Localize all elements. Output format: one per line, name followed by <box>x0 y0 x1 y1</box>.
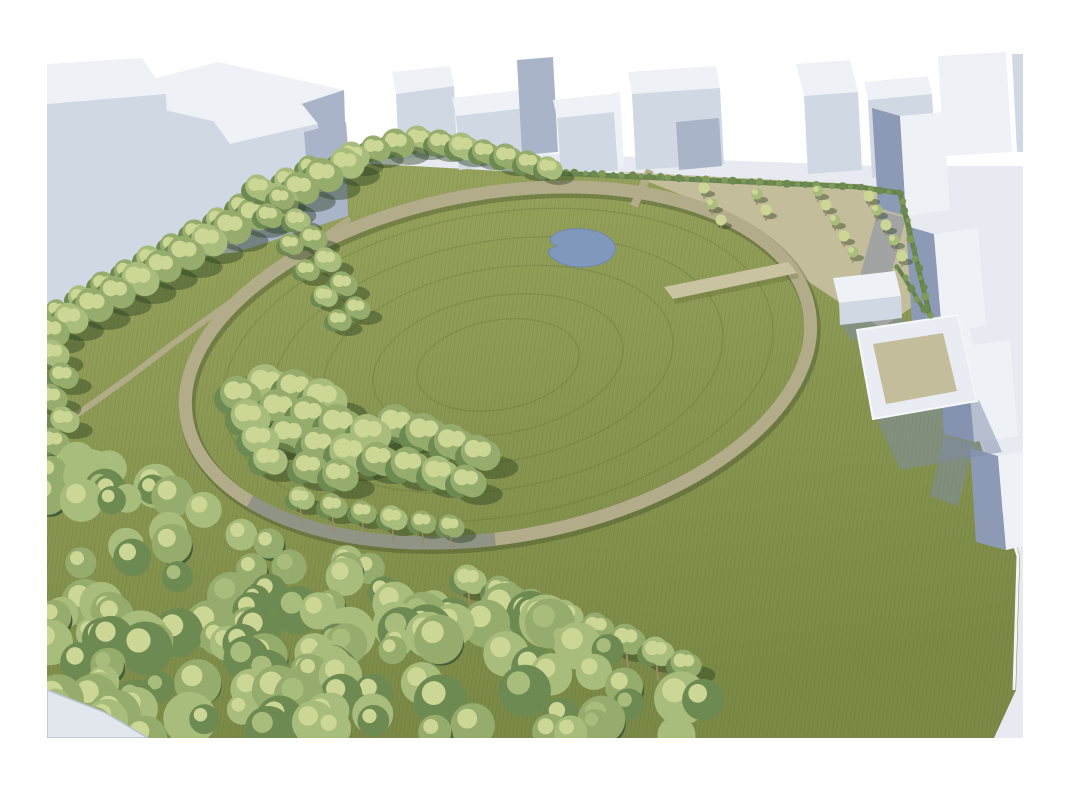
canopy-highlight <box>70 551 84 565</box>
hedge-shrub <box>629 171 637 179</box>
tree-highlight <box>267 208 278 219</box>
sapling-crown <box>752 189 758 195</box>
canopy-highlight <box>281 592 303 614</box>
canopy-highlight <box>214 578 235 599</box>
canopy-highlight <box>305 597 322 614</box>
hedge-shrub <box>711 177 716 182</box>
building-block-f <box>553 92 624 176</box>
building-face <box>804 92 862 174</box>
canopy-highlight <box>241 557 255 571</box>
tree-highlight <box>90 294 105 309</box>
hedge-shrub <box>665 175 672 182</box>
tree-highlight <box>48 389 60 401</box>
hedge-shrub <box>598 170 606 178</box>
hedge-shrub <box>591 170 598 177</box>
hedge-shrub <box>721 177 728 184</box>
tree-highlight <box>286 423 302 439</box>
tree-highlight <box>67 308 80 321</box>
sapling-crown <box>889 235 895 241</box>
tree-highlight <box>464 471 478 485</box>
sapling-crown <box>872 205 878 211</box>
canopy-highlight <box>383 639 396 652</box>
tree-highlight <box>50 345 62 357</box>
hedge-shrub <box>909 287 914 292</box>
hedge-shrub <box>611 172 616 177</box>
hedge-shrub <box>911 247 916 252</box>
tree-highlight <box>228 216 243 231</box>
hedge-shrub <box>848 184 853 189</box>
tree-highlight <box>320 164 335 179</box>
hedge-shrub <box>783 180 791 188</box>
tree-highlight <box>654 642 667 655</box>
canopy-highlight <box>119 543 136 560</box>
tree-highlight <box>279 191 289 201</box>
canopy-highlight <box>102 490 115 503</box>
hedge-shrub <box>657 175 662 180</box>
building-tall-slab <box>517 57 558 155</box>
canopy-highlight <box>167 565 181 579</box>
sapling-crown <box>897 251 903 257</box>
hedge-shrub <box>729 177 737 185</box>
canopy-highlight <box>158 481 177 500</box>
canopy-highlight <box>95 622 115 642</box>
canopy-highlight <box>457 709 477 729</box>
tree-highlight <box>159 256 173 270</box>
canopy-highlight <box>663 721 680 738</box>
park-rendering-svg <box>0 0 1068 799</box>
hedge-shrub <box>900 198 907 205</box>
tree-highlight <box>289 237 298 246</box>
building-row-slab-4 <box>970 448 1023 550</box>
canopy-highlight <box>596 638 610 652</box>
tree-highlight <box>311 230 322 241</box>
tree-highlight <box>246 406 261 421</box>
tree-highlight <box>460 138 472 150</box>
tree-highlight <box>306 457 320 471</box>
tree-highlight <box>527 155 538 166</box>
canopy-highlight <box>298 706 318 726</box>
hedge-shrub <box>795 182 800 187</box>
canopy-highlight <box>191 496 207 512</box>
canopy-highlight <box>538 718 554 734</box>
canopy-highlight <box>158 529 176 547</box>
scene-content <box>27 52 1023 760</box>
sapling-crown <box>830 215 836 221</box>
hedge-shrub <box>894 264 899 269</box>
hedge-shrub <box>921 293 929 301</box>
hedge-shrub <box>638 173 643 178</box>
canopy-highlight <box>194 708 208 722</box>
tree-highlight <box>366 421 382 437</box>
tree-highlight <box>361 505 371 515</box>
tree-highlight <box>449 519 459 529</box>
sapling-crown <box>848 247 854 253</box>
tree-highlight <box>624 629 637 642</box>
building-row-slab-1 <box>872 108 950 216</box>
tree-highlight <box>436 462 451 477</box>
building-bg-slab-1 <box>938 52 1012 156</box>
tree-highlight <box>682 655 694 667</box>
building-face <box>517 57 558 155</box>
hedge-shrub <box>921 284 928 291</box>
building-face <box>938 52 1012 156</box>
canopy-highlight <box>230 642 251 663</box>
canopy-highlight <box>300 659 315 674</box>
tree-highlight <box>421 515 431 525</box>
hedge-shrub <box>914 296 921 303</box>
hedge-shrub <box>886 190 891 195</box>
tree-highlight <box>61 411 72 422</box>
hedge-shrub <box>821 183 826 188</box>
tree-highlight <box>256 179 267 190</box>
hedge-shrub <box>829 183 836 190</box>
sapling-crown <box>821 200 827 206</box>
canopy-highlight <box>507 671 530 694</box>
hedge-shrub <box>906 227 913 234</box>
hedge-shrub <box>618 172 625 179</box>
hedge-shrub <box>900 207 908 215</box>
canopy-highlight <box>277 554 293 570</box>
building-face <box>676 118 722 170</box>
tree-highlight <box>406 454 421 469</box>
rendering-canvas <box>0 0 1068 799</box>
sapling-crown <box>864 191 870 197</box>
hedge-shrub <box>776 180 783 187</box>
canopy-highlight <box>230 523 244 537</box>
tree-highlight <box>466 570 479 583</box>
canopy-highlight <box>585 713 598 726</box>
hedge-shrub <box>756 178 764 186</box>
canopy-highlight <box>611 672 628 689</box>
canopy-highlight <box>181 665 202 686</box>
hedge-shrub <box>927 312 934 319</box>
hedge-shrub <box>748 178 755 185</box>
hedge-shrub <box>702 175 710 183</box>
sapling-crown <box>761 205 767 211</box>
tree-highlight <box>205 230 219 244</box>
canopy-highlight <box>422 681 446 705</box>
tree-highlight <box>594 618 607 631</box>
hedge-shrub <box>769 180 774 185</box>
canopy-highlight <box>258 532 272 546</box>
tree-highlight <box>182 242 197 257</box>
tree-highlight <box>48 321 61 334</box>
hedge-shrub <box>912 256 919 263</box>
hedge-shrub <box>684 176 689 181</box>
canopy-highlight <box>362 709 376 723</box>
canopy-highlight <box>95 652 110 667</box>
tree-highlight <box>299 491 309 501</box>
canopy-highlight <box>331 562 348 579</box>
hedge-shrub <box>918 275 923 280</box>
tree-highlight <box>236 383 252 399</box>
hedge-shrub <box>839 182 847 190</box>
tree-highlight <box>355 301 365 311</box>
canopy-highlight <box>688 684 707 703</box>
canopy-highlight <box>561 628 582 649</box>
hedge-shrub <box>906 235 914 243</box>
tree-highlight <box>325 252 336 263</box>
hedge-shrub <box>896 189 901 194</box>
building-face <box>900 112 950 216</box>
tree-highlight <box>297 178 311 192</box>
canopy-highlight <box>423 719 438 734</box>
sapling-crown <box>881 220 887 226</box>
canopy-highlight <box>421 621 443 643</box>
sapling-crown <box>716 215 722 221</box>
canopy-highlight <box>559 720 574 735</box>
hedge-shrub <box>921 305 929 313</box>
hedge-shrub <box>876 187 884 195</box>
tree-highlight <box>547 161 557 171</box>
tree-highlight <box>50 433 62 445</box>
hedge-shrub <box>906 218 911 223</box>
hedge-shrub <box>675 174 683 182</box>
hedge-shrub <box>741 179 746 184</box>
canopy-highlight <box>231 698 245 712</box>
tree-highlight <box>341 276 352 287</box>
tree-highlight <box>372 140 383 151</box>
tree-highlight <box>391 510 402 521</box>
sapling-crown <box>699 183 705 189</box>
tree-highlight <box>295 213 305 223</box>
tree-highlight <box>331 498 342 509</box>
canopy-highlight <box>252 712 273 733</box>
hedge-shrub <box>902 275 909 282</box>
tree-highlight <box>336 465 350 479</box>
building-block-g <box>628 66 724 170</box>
tree-highlight <box>504 148 515 159</box>
hedge-shrub <box>915 264 923 272</box>
hedge-shrub <box>802 181 809 188</box>
building-face <box>796 60 858 96</box>
tree-highlight <box>394 134 407 147</box>
canopy-highlight <box>581 658 597 674</box>
tree-highlight <box>113 282 127 296</box>
tree-highlight <box>483 144 494 155</box>
tree-highlight <box>266 449 279 462</box>
sapling-crown <box>839 231 845 237</box>
building-face <box>557 112 618 176</box>
tree-highlight <box>305 263 314 272</box>
rendering-page <box>0 0 1068 799</box>
sapling-crown <box>707 199 713 205</box>
hedge-shrub <box>695 176 702 183</box>
tree-highlight <box>136 268 151 283</box>
tree-highlight <box>337 313 346 322</box>
tree-highlight <box>476 442 491 457</box>
tree-highlight <box>320 386 337 403</box>
hedge-shrub <box>857 185 862 190</box>
canopy-highlight <box>100 600 118 618</box>
canopy-highlight <box>532 605 554 627</box>
canopy-highlight <box>66 484 86 504</box>
tree-highlight <box>256 428 271 443</box>
canopy-highlight <box>66 647 84 665</box>
canopy-highlight <box>490 637 510 657</box>
sapling-crown <box>813 186 819 192</box>
tree-highlight <box>60 367 71 378</box>
tree-highlight <box>343 153 356 166</box>
hedge-shrub <box>583 171 588 176</box>
canopy-highlight <box>321 715 337 731</box>
tree-highlight <box>323 289 332 298</box>
hedge-shrub <box>646 173 653 180</box>
canopy-highlight <box>126 628 150 652</box>
